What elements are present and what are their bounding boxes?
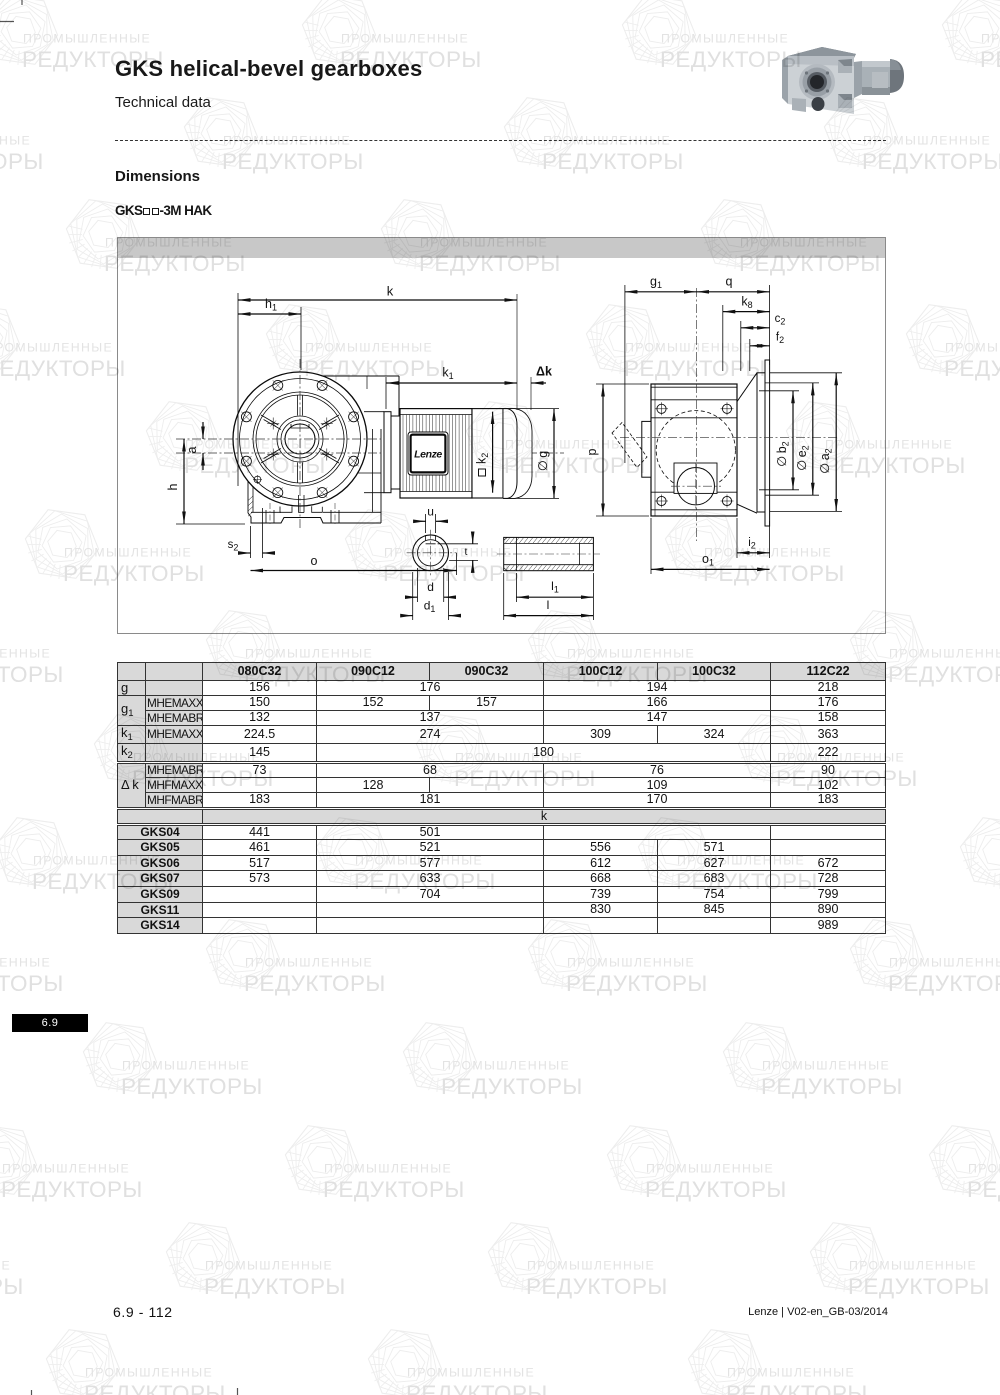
svg-text:f2: f2 bbox=[776, 332, 784, 346]
svg-text:h: h bbox=[166, 483, 180, 490]
svg-text:s2: s2 bbox=[228, 539, 239, 553]
svg-text:l1: l1 bbox=[551, 579, 559, 595]
svg-text:p: p bbox=[585, 448, 599, 455]
svg-text:∅ b2: ∅ b2 bbox=[775, 441, 791, 466]
svg-text:∅ e2: ∅ e2 bbox=[795, 445, 811, 470]
svg-text:u: u bbox=[427, 505, 434, 519]
svg-text:o1: o1 bbox=[702, 552, 714, 568]
svg-text:g1: g1 bbox=[650, 275, 662, 291]
svg-text:k8: k8 bbox=[741, 295, 752, 311]
svg-text:l: l bbox=[547, 598, 550, 612]
svg-text:k: k bbox=[387, 284, 394, 299]
svg-text:Δk: Δk bbox=[536, 365, 552, 379]
svg-text:c2: c2 bbox=[775, 313, 786, 327]
svg-text:∅ a2: ∅ a2 bbox=[818, 448, 834, 473]
svg-text:a: a bbox=[185, 446, 199, 453]
svg-text:k1: k1 bbox=[442, 366, 453, 382]
svg-text:∅ g: ∅ g bbox=[536, 451, 550, 471]
svg-text:d: d bbox=[427, 580, 434, 594]
svg-text:h1: h1 bbox=[265, 297, 277, 313]
svg-text:Lenze: Lenze bbox=[414, 449, 442, 461]
svg-text:o: o bbox=[311, 554, 318, 568]
svg-text:q: q bbox=[726, 275, 733, 289]
svg-text:i2: i2 bbox=[748, 537, 756, 551]
svg-text:d1: d1 bbox=[424, 599, 436, 615]
svg-text:t: t bbox=[465, 546, 468, 558]
